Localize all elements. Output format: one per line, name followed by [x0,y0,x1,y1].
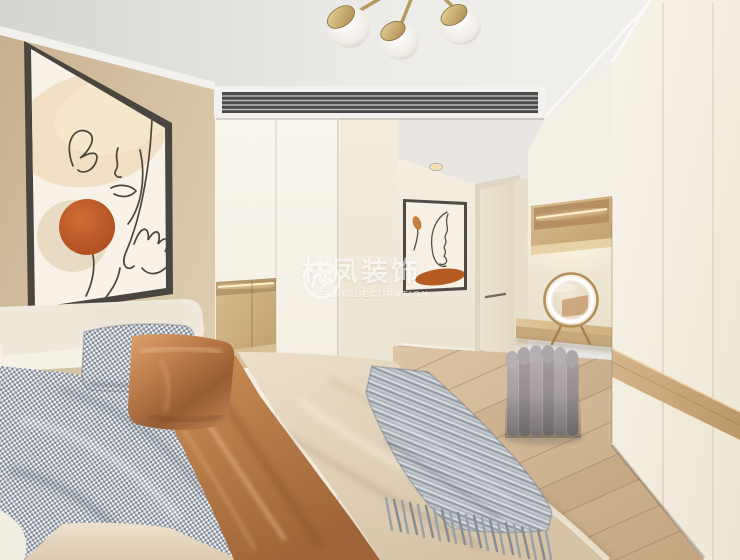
ac-vent [214,86,546,119]
pillow-caramel [128,334,234,430]
door [475,175,520,364]
vanity-shelf [531,196,612,255]
downlight [430,163,443,170]
art-orange-circle [59,199,115,255]
vanity-stool [503,345,583,445]
bedroom-scene [0,0,740,560]
wall-art-small [403,199,467,293]
bedroom-render: 林凤装饰 LINFENG DECORATION [0,0,740,560]
